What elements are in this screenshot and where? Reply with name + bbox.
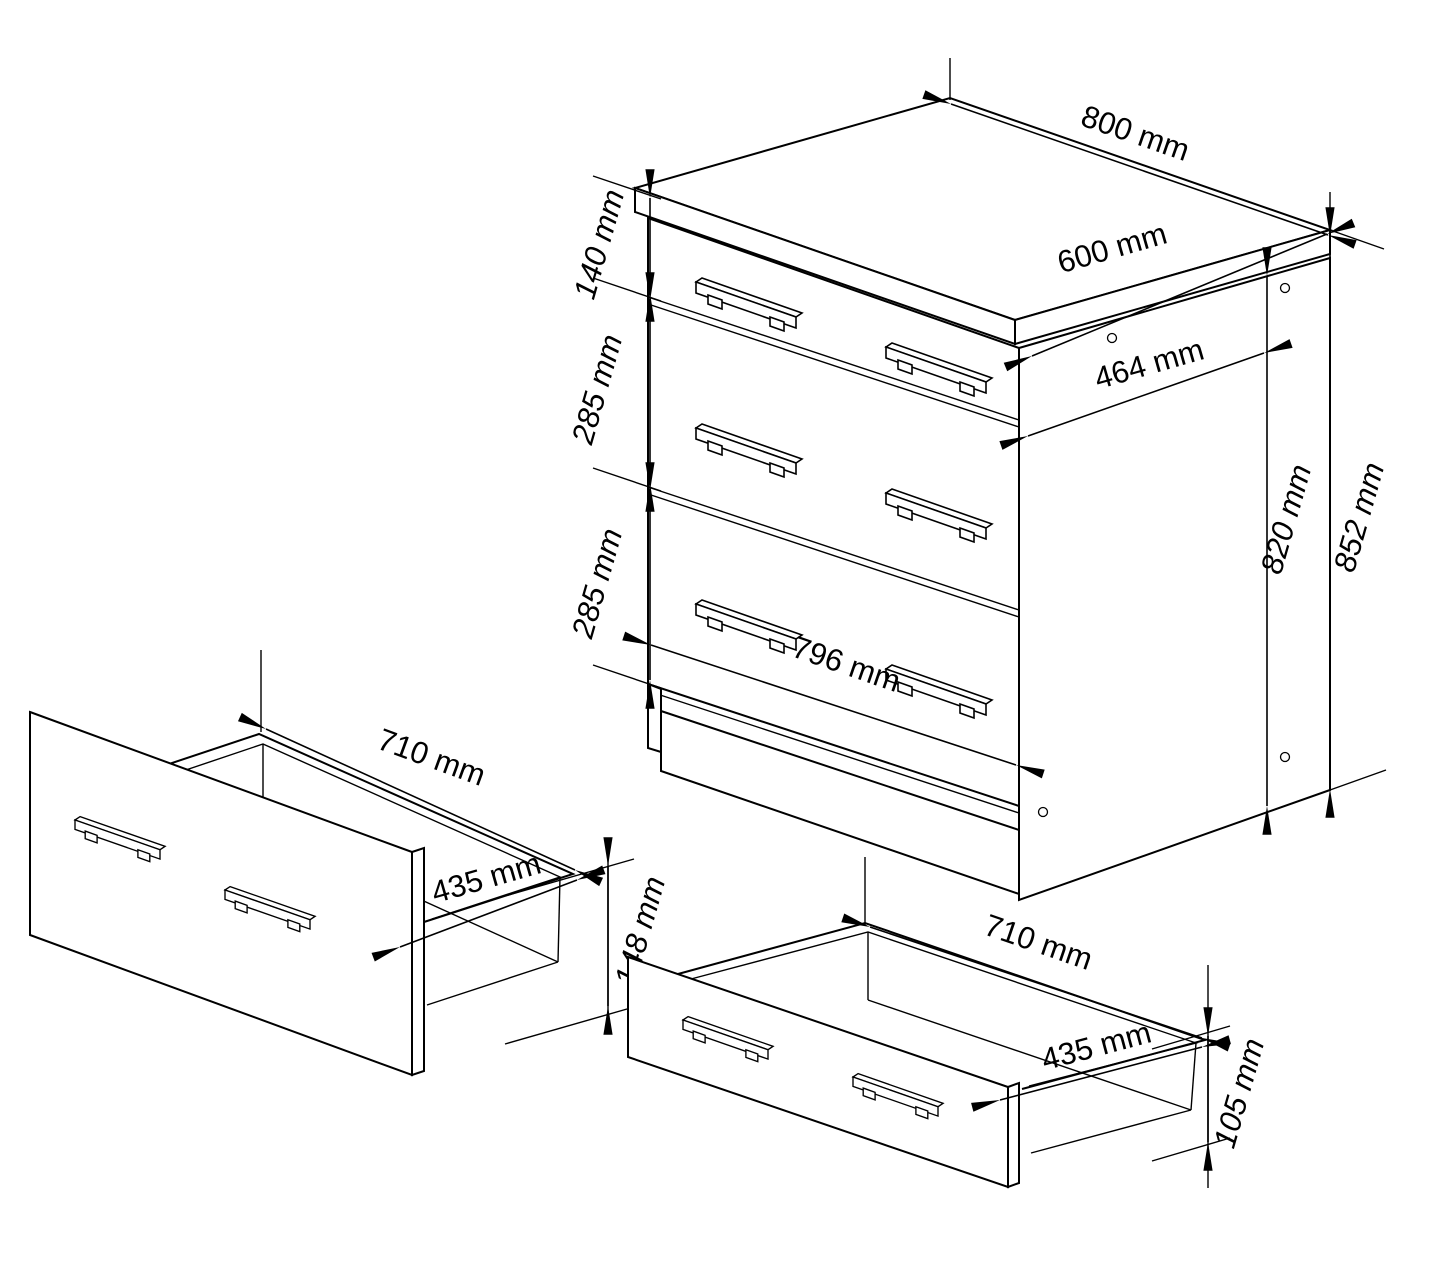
drawer-front-panel [628,957,1008,1187]
cam-hole [1108,334,1117,343]
drawer-front-panel [30,712,412,1075]
cam-hole [1039,808,1048,817]
drawer-box-inner-corner [558,877,560,962]
extension-line [1330,230,1384,249]
extension-line [505,1007,634,1044]
dim-label-left-depth: 435 mm [427,846,544,911]
extension-line [1152,1026,1230,1049]
drawer-box-right-base [427,962,558,1005]
cabinet-view [635,98,1330,900]
dim-label-drawer2-front: 285 mm [564,330,629,448]
dim-label-drawer1-front: 140 mm [567,185,632,302]
extension-line [1330,770,1386,790]
dim-label-right-front-height: 105 mm [1207,1034,1272,1151]
technical-drawing-page: 800 mm 600 mm 464 mm 820 mm 852 mm 140 m… [0,0,1445,1261]
cam-hole [1281,753,1290,762]
dim-label-right-width: 710 mm [980,907,1097,977]
dim-label-right-depth: 435 mm [1038,1014,1155,1077]
drawer-front-edge [412,848,424,1075]
furniture-dimension-drawing: 800 mm 600 mm 464 mm 820 mm 852 mm 140 m… [0,0,1445,1261]
dim-label-drawer3-front: 285 mm [564,524,629,642]
dim-label-total-height: 852 mm [1327,458,1392,575]
drawer-box-right-base [1031,1110,1191,1153]
cabinet-left-leg [648,684,661,752]
dim-label-left-width: 710 mm [373,722,490,793]
cam-hole [1281,284,1290,293]
drawer-box-inner-corner [1191,1043,1196,1110]
drawer-front-edge [1008,1083,1019,1187]
